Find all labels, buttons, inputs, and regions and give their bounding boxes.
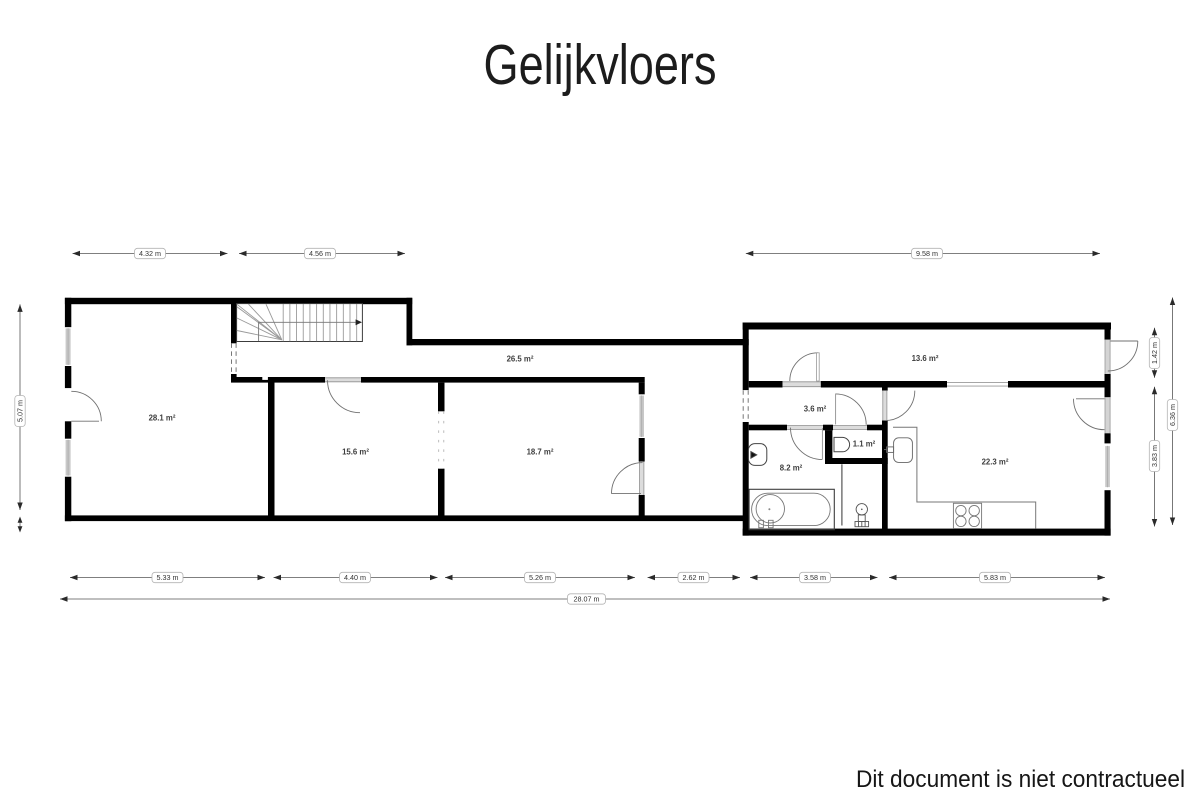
svg-text:15.6 m²: 15.6 m² (342, 448, 369, 457)
svg-text:28.07 m: 28.07 m (574, 595, 600, 604)
svg-text:22.3 m²: 22.3 m² (982, 458, 1009, 467)
svg-text:5.83 m: 5.83 m (984, 573, 1006, 582)
svg-text:4.56 m: 4.56 m (309, 249, 331, 258)
svg-text:28.1 m²: 28.1 m² (149, 414, 176, 423)
svg-text:26.5 m²: 26.5 m² (507, 355, 534, 364)
svg-text:3.58 m: 3.58 m (804, 573, 826, 582)
svg-text:Gelijkvloers: Gelijkvloers (484, 33, 717, 96)
svg-text:3.83 m: 3.83 m (1150, 445, 1159, 467)
svg-text:2.62 m: 2.62 m (683, 573, 705, 582)
svg-text:8.2 m²: 8.2 m² (780, 464, 803, 473)
svg-text:5.26 m: 5.26 m (529, 573, 551, 582)
svg-text:6.36 m: 6.36 m (1168, 404, 1177, 426)
svg-text:18.7 m²: 18.7 m² (527, 448, 554, 457)
svg-text:Dit document is niet contractu: Dit document is niet contractueel (856, 766, 1185, 793)
svg-text:13.6 m²: 13.6 m² (912, 354, 939, 363)
svg-text:5.33 m: 5.33 m (157, 573, 179, 582)
svg-text:4.40 m: 4.40 m (344, 573, 366, 582)
svg-text:4.32 m: 4.32 m (139, 249, 161, 258)
svg-text:9.58 m: 9.58 m (916, 249, 938, 258)
svg-text:1.42 m: 1.42 m (1150, 342, 1159, 364)
svg-text:3.6 m²: 3.6 m² (804, 405, 827, 414)
svg-text:1.1 m²: 1.1 m² (853, 440, 876, 449)
svg-text:5.07 m: 5.07 m (16, 400, 25, 422)
